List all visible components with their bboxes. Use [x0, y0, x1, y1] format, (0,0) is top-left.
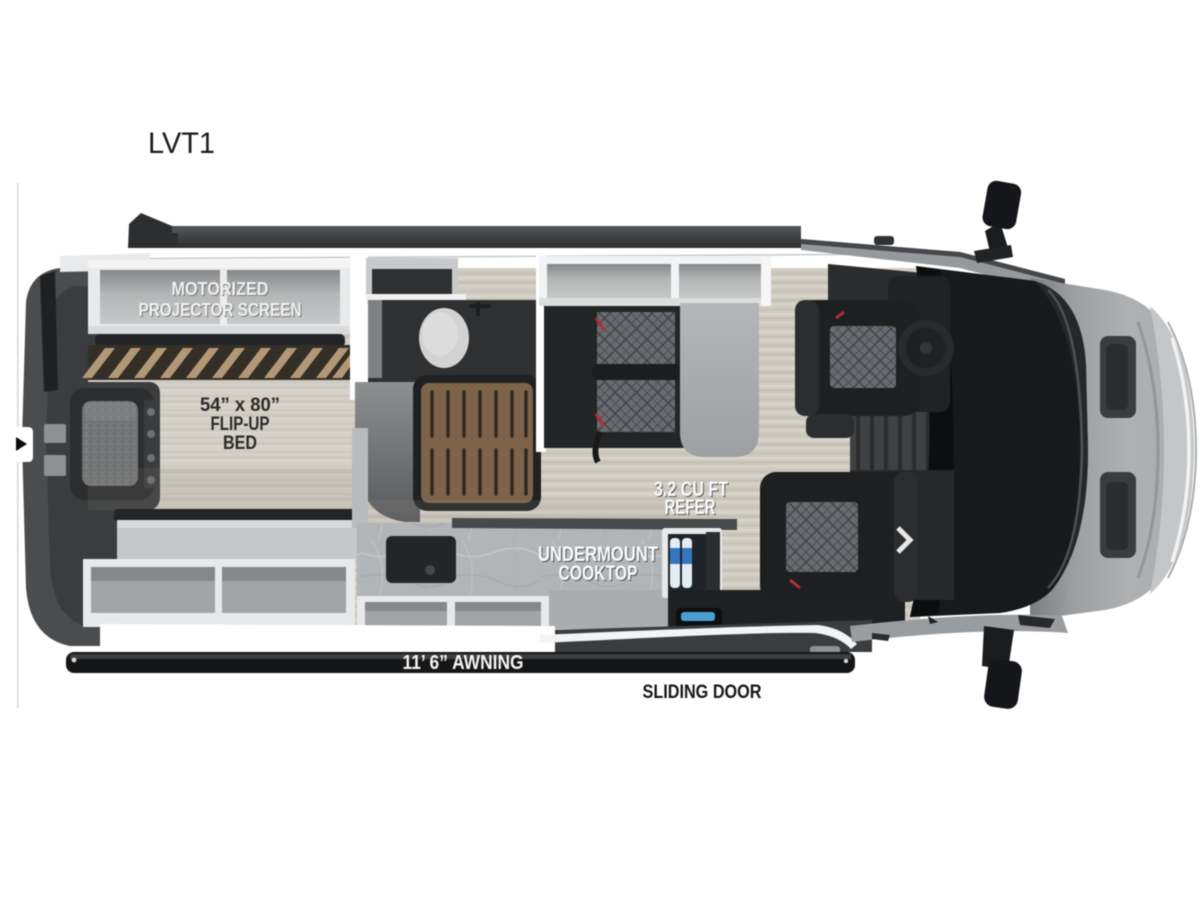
svg-text:54” x 80”: 54” x 80” [200, 395, 280, 416]
svg-text:MOTORIZED: MOTORIZED [172, 279, 269, 299]
svg-text:BED: BED [223, 433, 257, 454]
svg-text:SLIDING DOOR: SLIDING DOOR [643, 681, 762, 703]
svg-text:FLIP-UP: FLIP-UP [211, 414, 270, 435]
svg-text:COOKTOP: COOKTOP [559, 562, 638, 585]
svg-text:11’ 6” AWNING: 11’ 6” AWNING [403, 652, 524, 674]
svg-text:PROJECTOR SCREEN: PROJECTOR SCREEN [139, 300, 302, 320]
svg-text:REFER: REFER [665, 496, 716, 519]
svg-text:LVT1: LVT1 [148, 127, 215, 160]
